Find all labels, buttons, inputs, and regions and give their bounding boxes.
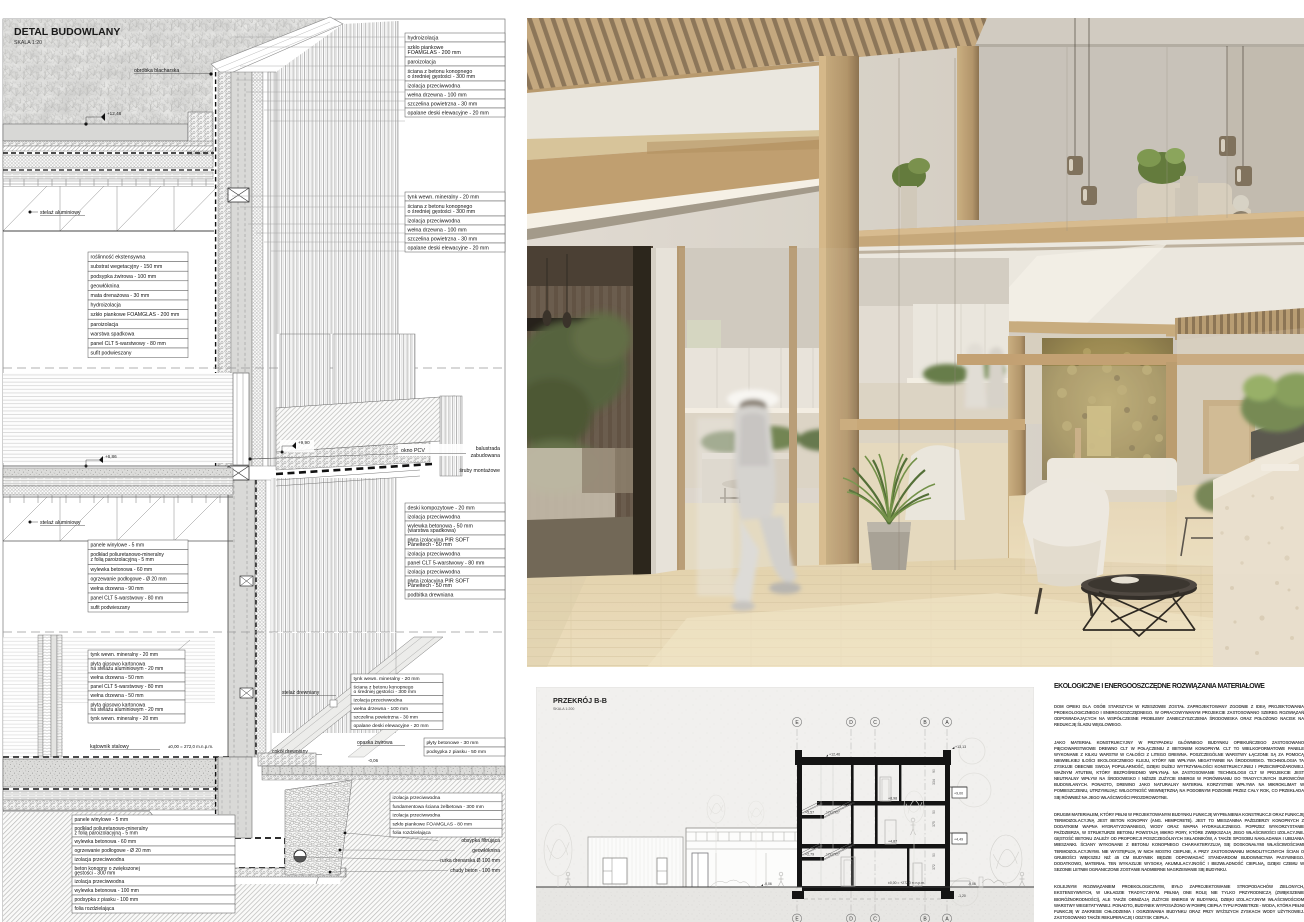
svg-text:stelaż aluminiowy: stelaż aluminiowy: [40, 210, 81, 216]
svg-text:izolacja przeciwwodna: izolacja przeciwwodna: [408, 551, 461, 557]
svg-text:wylewka betonowa - 60 mm: wylewka betonowa - 60 mm: [75, 839, 137, 845]
svg-text:-0,06: -0,06: [968, 882, 976, 886]
svg-text:mata drenażowa - 30 mm: mata drenażowa - 30 mm: [91, 293, 150, 299]
svg-text:opalane deski elewacyjne - 20: opalane deski elewacyjne - 20 mm: [408, 110, 490, 116]
svg-text:+12,46: +12,46: [829, 753, 840, 757]
svg-text:+4,49: +4,49: [954, 838, 963, 842]
svg-text:panel CLT 5-warstwowy - 80 mm: panel CLT 5-warstwowy - 80 mm: [91, 341, 166, 347]
svg-text:opalane deski elewacyjne - 20: opalane deski elewacyjne - 20 mm: [354, 723, 429, 729]
svg-text:+6,86: +6,86: [105, 454, 117, 459]
svg-text:+5,57: +5,57: [805, 811, 814, 815]
svg-text:obsypka filtrująca: obsypka filtrująca: [461, 838, 500, 844]
svg-text:17x17x27: 17x17x27: [826, 811, 840, 815]
svg-text:FOAMGLAS - 200 mm: FOAMGLAS - 200 mm: [408, 50, 462, 56]
svg-text:hydroizolacja: hydroizolacja: [408, 35, 439, 41]
svg-text:-1,20: -1,20: [958, 894, 966, 898]
svg-text:Paneltech - 50 mm: Paneltech - 50 mm: [408, 542, 453, 548]
svg-text:szczelina powietrzna - 30 mm: szczelina powietrzna - 30 mm: [408, 101, 478, 107]
svg-text:kątownik stalowy: kątownik stalowy: [90, 744, 129, 750]
svg-text:wełna drzewna - 90 mm: wełna drzewna - 90 mm: [91, 586, 144, 592]
svg-text:+8,98: +8,98: [888, 797, 897, 801]
svg-text:wełna drzewna - 100 mm: wełna drzewna - 100 mm: [408, 227, 468, 233]
svg-text:panele winylowe - 5 mm: panele winylowe - 5 mm: [91, 543, 145, 549]
svg-text:-0,06: -0,06: [764, 882, 772, 886]
svg-text:chudy beton - 100 mm: chudy beton - 100 mm: [450, 868, 500, 874]
svg-text:wylewka betonowa - 60 mm: wylewka betonowa - 60 mm: [91, 567, 153, 573]
svg-text:ogrzewanie podłogowe - Ø 20 mm: ogrzewanie podłogowe - Ø 20 mm: [91, 577, 167, 583]
svg-text:panele winylowe - 5 mm: panele winylowe - 5 mm: [75, 817, 129, 823]
svg-text:+12,48: +12,48: [107, 111, 122, 116]
svg-text:+2,79: +2,79: [805, 853, 814, 857]
svg-text:szkło piankowe FOAMGLAS - 200: szkło piankowe FOAMGLAS - 200 mm: [91, 312, 180, 318]
svg-text:z folią paroizolacyjną - 5 mm: z folią paroizolacyjną - 5 mm: [75, 830, 138, 836]
svg-text:substrat wegetacyjny - 150 mm: substrat wegetacyjny - 150 mm: [91, 264, 163, 270]
svg-text:szkło piankowe FOAMGLAS - 80 m: szkło piankowe FOAMGLAS - 80 mm: [393, 821, 472, 827]
svg-text:o średniej gęstości - 300 mm: o średniej gęstości - 300 mm: [408, 209, 476, 215]
svg-text:wełna drzewna - 50 mm: wełna drzewna - 50 mm: [91, 693, 144, 699]
svg-text:paroizolacja: paroizolacja: [408, 59, 436, 65]
svg-text:szczelina powietrzna - 30 mm: szczelina powietrzna - 30 mm: [408, 236, 478, 242]
svg-text:panel CLT 5-warstwowy - 80 mm: panel CLT 5-warstwowy - 80 mm: [91, 596, 164, 602]
svg-text:50: 50: [932, 810, 936, 814]
svg-text:podbitka drewniana: podbitka drewniana: [408, 592, 454, 598]
svg-text:+9,90: +9,90: [298, 440, 310, 445]
svg-text:+4,87: +4,87: [888, 840, 897, 844]
svg-text:izolacja przeciwwodna: izolacja przeciwwodna: [75, 879, 125, 885]
svg-text:tynk wewn. mineralny - 20 mm: tynk wewn. mineralny - 20 mm: [354, 676, 420, 682]
svg-text:rurka drenarska Ø 100 mm: rurka drenarska Ø 100 mm: [440, 858, 500, 864]
svg-text:folia rozdzielająca: folia rozdzielająca: [393, 830, 431, 836]
svg-text:372: 372: [932, 864, 936, 870]
svg-text:D: D: [849, 917, 853, 922]
svg-text:stelaż aluminiowy: stelaż aluminiowy: [40, 520, 81, 526]
svg-text:+13,13: +13,13: [955, 745, 966, 749]
svg-text:hydroizolacja: hydroizolacja: [91, 303, 121, 309]
svg-text:Paneltech - 50 mm: Paneltech - 50 mm: [408, 583, 453, 589]
svg-text:SKALA 1:200: SKALA 1:200: [553, 707, 574, 711]
svg-text:±0,00 = +272,0 m n.p.m.: ±0,00 = +272,0 m n.p.m.: [888, 881, 925, 885]
svg-text:izolacja przeciwwodna: izolacja przeciwwodna: [393, 795, 441, 801]
svg-text:zabudowana: zabudowana: [471, 453, 501, 459]
svg-text:D: D: [849, 720, 853, 726]
svg-text:balustrada: balustrada: [476, 446, 500, 452]
svg-text:obróbka blacharska: obróbka blacharska: [134, 68, 179, 74]
svg-text:deski kompozytowe - 20 mm: deski kompozytowe - 20 mm: [408, 505, 476, 511]
svg-text:50: 50: [932, 853, 936, 857]
svg-text:C: C: [873, 917, 877, 922]
svg-text:wylewka betonowa - 100 mm: wylewka betonowa - 100 mm: [75, 888, 139, 894]
svg-text:roślinność ekstensywna: roślinność ekstensywna: [91, 255, 146, 261]
svg-text:izolacja przeciwwodna: izolacja przeciwwodna: [354, 697, 403, 703]
svg-text:izolacja przeciwwodna: izolacja przeciwwodna: [393, 813, 441, 819]
svg-text:o średniej gęstości - 300 mm: o średniej gęstości - 300 mm: [408, 74, 476, 80]
svg-text:podsypka z piasku - 100 mm: podsypka z piasku - 100 mm: [75, 897, 139, 903]
svg-text:geowłóknina: geowłóknina: [472, 848, 500, 854]
svg-text:±0,00 = 272,0 m.n.p.m.: ±0,00 = 272,0 m.n.p.m.: [168, 744, 213, 749]
svg-text:izolacja przeciwwodna: izolacja przeciwwodna: [408, 514, 461, 520]
svg-text:paroizolacja: paroizolacja: [91, 322, 119, 328]
svg-text:śruby montażowe: śruby montażowe: [459, 468, 500, 474]
svg-text:DETAL BUDOWLANY: DETAL BUDOWLANY: [14, 26, 120, 38]
svg-text:podsypka z piasku - 50 mm: podsypka z piasku - 50 mm: [427, 749, 487, 755]
svg-text:-0,06: -0,06: [368, 758, 379, 763]
svg-text:folia rozdzielająca: folia rozdzielająca: [75, 906, 115, 912]
svg-text:fundamentowa ściana żelbetowa: fundamentowa ściana żelbetowa - 300 mm: [393, 804, 484, 810]
svg-text:izolacja przeciwwodna: izolacja przeciwwodna: [75, 857, 125, 863]
svg-text:wełna drzewna - 100 mm: wełna drzewna - 100 mm: [354, 706, 409, 712]
svg-text:SKALA 1:20: SKALA 1:20: [14, 40, 42, 46]
svg-text:90: 90: [932, 769, 936, 773]
svg-text:gęstości - 300 mm: gęstości - 300 mm: [75, 870, 116, 876]
svg-text:o średniej gęstości - 300 mm: o średniej gęstości - 300 mm: [354, 689, 417, 695]
svg-text:sufit podwieszany: sufit podwieszany: [91, 605, 131, 611]
svg-text:płyty betonowe - 30 mm: płyty betonowe - 30 mm: [427, 740, 479, 746]
svg-text:wełna drzewna - 100 mm: wełna drzewna - 100 mm: [408, 92, 468, 98]
svg-text:375: 375: [932, 821, 936, 827]
svg-text:szczelina powietrzna - 30 mm: szczelina powietrzna - 30 mm: [354, 714, 418, 720]
svg-text:+9,00: +9,00: [954, 792, 963, 796]
svg-text:tynk wewn. mineralny - 20 mm: tynk wewn. mineralny - 20 mm: [91, 716, 159, 722]
svg-text:na stelażu aluminiowym - 20 mm: na stelażu aluminiowym - 20 mm: [91, 707, 164, 713]
svg-text:z folią paroizolacyjną - 5 mm: z folią paroizolacyjną - 5 mm: [91, 557, 154, 563]
svg-text:PRZEKRÓJ B-B: PRZEKRÓJ B-B: [553, 696, 607, 705]
svg-text:opalane deski elewacyjne - 20: opalane deski elewacyjne - 20 mm: [408, 245, 490, 251]
svg-text:izolacja przeciwwodna: izolacja przeciwwodna: [408, 83, 461, 89]
svg-text:geowłóknina: geowłóknina: [91, 283, 120, 289]
svg-text:warstwa spadkowa: warstwa spadkowa: [91, 331, 135, 337]
svg-text:334: 334: [932, 779, 936, 785]
svg-text:panel CLT 5-warstwowy - 80 mm: panel CLT 5-warstwowy - 80 mm: [91, 684, 164, 690]
svg-text:podsypka żwirowa - 100 mm: podsypka żwirowa - 100 mm: [91, 274, 157, 280]
svg-text:opaska żwirowa: opaska żwirowa: [357, 740, 393, 746]
svg-text:17x17x27: 17x17x27: [826, 853, 840, 857]
svg-text:C: C: [873, 720, 877, 726]
svg-text:ogrzewanie podłogowe - Ø 20 mm: ogrzewanie podłogowe - Ø 20 mm: [75, 848, 151, 854]
svg-text:sufit podwieszany: sufit podwieszany: [91, 351, 132, 357]
svg-text:panel CLT 5-warstwowy - 80 mm: panel CLT 5-warstwowy - 80 mm: [408, 560, 486, 566]
svg-text:tynk wewn. mineralny - 20 mm: tynk wewn. mineralny - 20 mm: [91, 652, 159, 658]
svg-text:izolacja przeciwwodna: izolacja przeciwwodna: [408, 218, 461, 224]
svg-text:okno PCV: okno PCV: [401, 448, 425, 454]
svg-text:izolacja przeciwwodna: izolacja przeciwwodna: [408, 569, 461, 575]
svg-text:na stelażu aluminiowym - 20 mm: na stelażu aluminiowym - 20 mm: [91, 666, 164, 672]
svg-text:(warstwa spadkowa): (warstwa spadkowa): [408, 528, 457, 534]
svg-text:stelaż drewniany: stelaż drewniany: [282, 690, 320, 696]
svg-text:wełna drzewna - 50 mm: wełna drzewna - 50 mm: [91, 675, 144, 681]
svg-text:tynk wewn. mineralny - 20 mm: tynk wewn. mineralny - 20 mm: [408, 194, 480, 200]
